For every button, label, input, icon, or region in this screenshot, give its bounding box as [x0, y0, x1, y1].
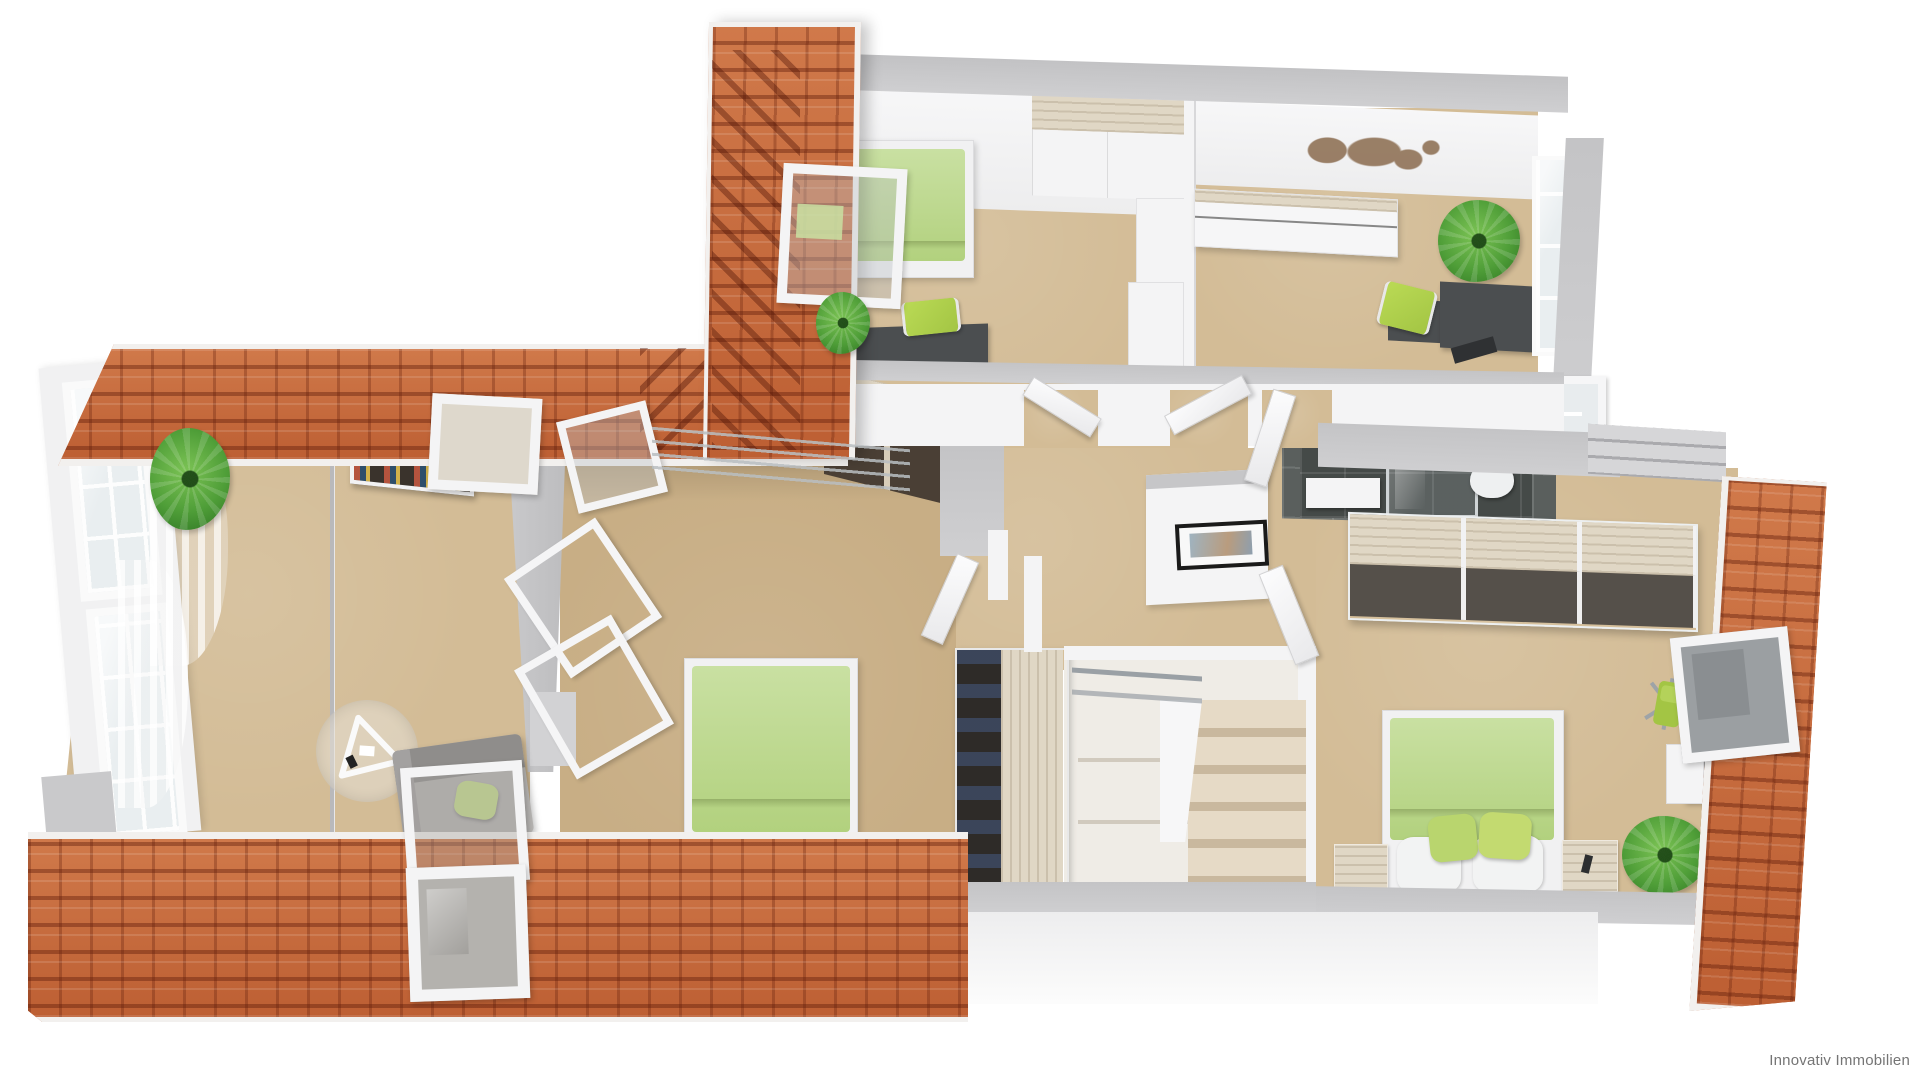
- wall-stub-hall-white: [988, 530, 1008, 600]
- wall-hall-bottom: [962, 882, 1316, 914]
- skylight-right-inner: [1692, 649, 1751, 720]
- sideboard-seam: [1195, 216, 1397, 229]
- wardrobe-wood-panel: [1001, 650, 1063, 890]
- framed-picture: [1175, 520, 1269, 571]
- stair-steps: [1188, 700, 1306, 890]
- skylight-bottom-roof: [406, 864, 531, 1002]
- skylight-right-roof: [1670, 626, 1801, 764]
- sideboard-office: [1194, 189, 1398, 258]
- wall-stub-bedroom2-door: [1024, 556, 1042, 652]
- world-map-decal: [1306, 126, 1448, 180]
- bathroom-vanity: [1306, 478, 1380, 508]
- closet-dark-fronts: [1350, 564, 1696, 628]
- floorplan-3d-render: Innovativ Immobilien: [0, 0, 1920, 1080]
- nightstand-right: [1562, 840, 1618, 892]
- desk-chair-top-bedroom: [900, 297, 961, 337]
- lower-gable-band: [958, 912, 1598, 1004]
- wardrobe-wood-top: [1032, 95, 1184, 134]
- watermark: Innovativ Immobilien: [1690, 1052, 1910, 1069]
- bed-center-fold: [692, 799, 850, 808]
- wardrobe-doors: [1032, 129, 1184, 200]
- closet-row: [1348, 512, 1698, 632]
- nightstand-phone: [1581, 854, 1593, 873]
- pillow-green-right: [1477, 811, 1532, 861]
- framed-picture-art: [1189, 530, 1252, 557]
- stairwell-wall-top: [1064, 646, 1314, 660]
- bed-double-frame: [1382, 710, 1564, 904]
- skylight-bottom-glass-reflection: [426, 888, 468, 955]
- pillow-green-left: [1427, 813, 1480, 864]
- dormer-skylight-studio: [428, 393, 543, 495]
- wall-bedroom3-topright: [1588, 424, 1726, 482]
- wardrobe-open: [955, 648, 1069, 896]
- bed-center-frame: [684, 658, 858, 840]
- wardrobe-top-bedroom: [1032, 95, 1184, 200]
- dormer-skylight-bedroom1: [776, 163, 907, 309]
- dormer-bedroom1-pillow-view: [796, 204, 844, 240]
